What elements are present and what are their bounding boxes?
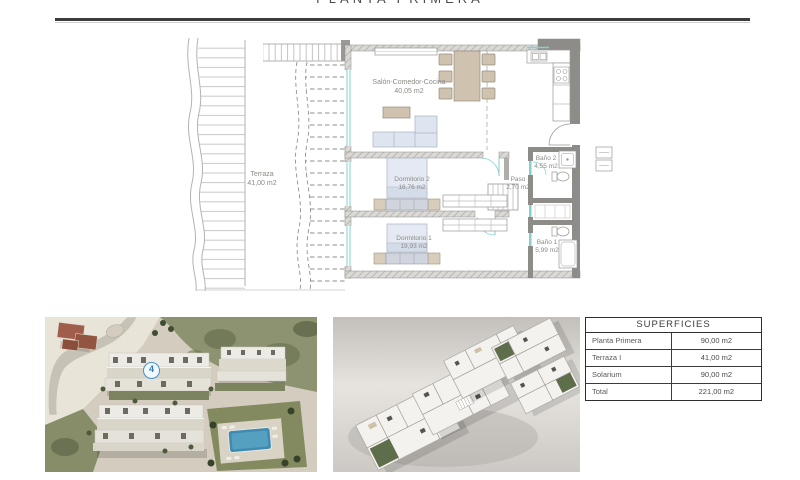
toilet-bano-1: [552, 227, 569, 236]
room-area: 41,00 m2: [247, 180, 276, 189]
table-row: Solarium 90,00 m2: [586, 367, 761, 384]
wardrobe-dormitorio-1: [443, 219, 507, 231]
aerial-site-drawing: [45, 317, 317, 472]
page-title: PLANTA PRIMERA: [0, 0, 800, 6]
table-row: Total 221,00 m2: [586, 384, 761, 400]
table-cell-label: Total: [586, 384, 672, 400]
room-label-paso: Paso 2,70 m2: [506, 176, 530, 192]
map-marker-number: 4: [149, 364, 154, 374]
table-cell-label: Terraza I: [586, 350, 672, 366]
pool: [217, 418, 284, 463]
table-row: Planta Primera 90,00 m2: [586, 333, 761, 350]
superficies-table: SUPERFICIES Planta Primera 90,00 m2 Terr…: [585, 317, 762, 401]
map-marker: 4: [143, 362, 160, 379]
superficies-table-title: SUPERFICIES: [586, 318, 761, 333]
room-label-salon: Salón-Comedor-Cocina 40,05 m2: [372, 79, 445, 96]
tv-sideboard: [375, 48, 437, 55]
room-name: Dormitorio 1: [396, 235, 431, 243]
aerial-site-photo: 4: [45, 317, 317, 472]
dining-table-and-chairs: [439, 51, 495, 101]
kitchen-sink: [531, 52, 547, 61]
isometric-model-photo: [333, 317, 580, 472]
table-row: Terraza I 41,00 m2: [586, 350, 761, 367]
room-area: 16,76 m2: [394, 184, 429, 192]
bathtub-bano-1: [559, 240, 577, 268]
room-label-bano-2: Baño 2 4,55 m2: [534, 155, 558, 171]
table-cell-value: 90,00 m2: [672, 333, 761, 349]
title-rule: [55, 18, 750, 21]
room-name: Dormitorio 2: [394, 176, 429, 184]
table-cell-value: 90,00 m2: [672, 367, 761, 383]
room-name: Baño 1: [535, 239, 559, 247]
room-label-dormitorio-2: Dormitorio 2 16,76 m2: [394, 176, 429, 192]
room-name: Terraza: [247, 171, 276, 180]
coffee-table: [383, 107, 410, 118]
table-cell-value: 221,00 m2: [672, 384, 761, 400]
shower-bano-2: [559, 151, 576, 168]
ac-units: [596, 147, 612, 171]
room-name: Baño 2: [534, 155, 558, 163]
building-b: [217, 347, 286, 388]
room-area: 19,93 m2: [396, 243, 431, 251]
room-area: 2,70 m2: [506, 184, 530, 192]
room-name: Paso: [506, 176, 530, 184]
wardrobe-dormitorio-2: [443, 195, 507, 207]
room-area: 4,55 m2: [534, 163, 558, 171]
sofa: [373, 116, 437, 147]
table-cell-label: Planta Primera: [586, 333, 672, 349]
table-cell-value: 41,00 m2: [672, 350, 761, 366]
room-area: 5,99 m2: [535, 247, 559, 255]
table-cell-label: Solarium: [586, 367, 672, 383]
isometric-model-drawing: [333, 317, 580, 472]
room-label-dormitorio-1: Dormitorio 1 19,93 m2: [396, 235, 431, 251]
toilet-bano-2: [552, 172, 569, 181]
brochure-page: PLANTA PRIMERA: [0, 0, 800, 480]
room-area: 40,05 m2: [372, 88, 445, 97]
room-label-bano-1: Baño 1 5,99 m2: [535, 239, 559, 255]
kitchen-stove: [554, 67, 569, 83]
terrace-terrain-hatching: [188, 38, 350, 291]
room-label-terraza: Terraza 41,00 m2: [247, 171, 276, 188]
room-name: Salón-Comedor-Cocina: [372, 79, 445, 88]
closet-shelving: [535, 205, 570, 218]
title-rule-thin: [55, 22, 750, 23]
building-c: [93, 405, 207, 458]
